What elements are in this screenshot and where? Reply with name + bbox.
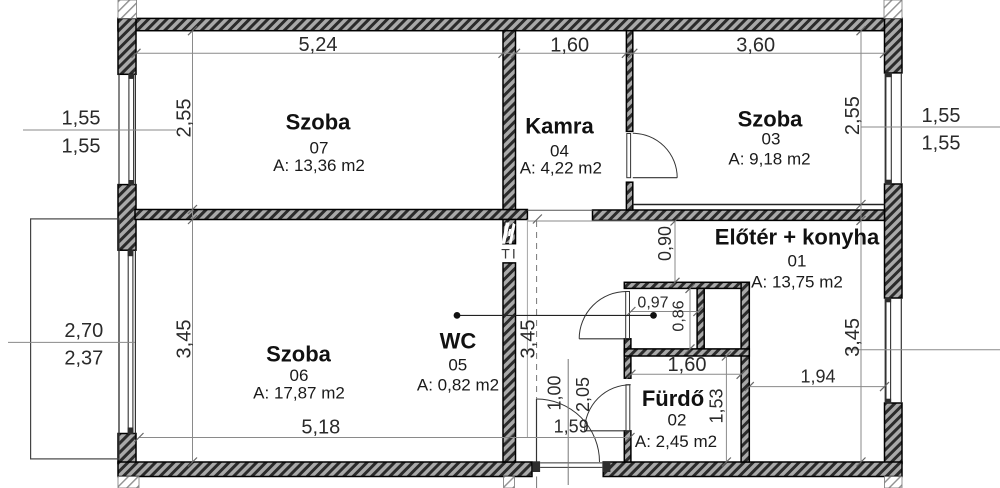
- svg-text:A: 4,22 m2: A: 4,22 m2: [520, 159, 602, 178]
- svg-text:1,60: 1,60: [550, 35, 589, 57]
- svg-text:2,55: 2,55: [174, 99, 196, 138]
- svg-text:1,59: 1,59: [554, 417, 589, 437]
- svg-text:06: 06: [290, 366, 309, 385]
- svg-text:A: 13,75 m2: A: 13,75 m2: [751, 273, 843, 292]
- svg-text:3,45: 3,45: [174, 320, 196, 359]
- svg-text:A: 17,87 m2: A: 17,87 m2: [253, 384, 345, 403]
- svg-text:5,24: 5,24: [299, 34, 338, 56]
- svg-text:1,55: 1,55: [62, 136, 101, 158]
- svg-text:A: 13,36 m2: A: 13,36 m2: [273, 156, 365, 175]
- svg-text:0,90: 0,90: [655, 226, 675, 261]
- svg-text:1,94: 1,94: [800, 367, 835, 387]
- svg-text:A: 9,18 m2: A: 9,18 m2: [728, 150, 810, 169]
- svg-text:5,18: 5,18: [301, 417, 340, 439]
- svg-text:0,97: 0,97: [637, 295, 668, 312]
- svg-text:2,70: 2,70: [64, 320, 103, 342]
- svg-text:2,05: 2,05: [573, 377, 593, 412]
- svg-text:3,60: 3,60: [736, 35, 775, 57]
- svg-text:Kamra: Kamra: [525, 114, 594, 139]
- svg-text:Szoba: Szoba: [738, 107, 804, 132]
- svg-text:1,60: 1,60: [668, 354, 707, 376]
- svg-text:2,55: 2,55: [842, 96, 864, 135]
- svg-text:Szoba: Szoba: [286, 110, 352, 135]
- svg-text:1,55: 1,55: [922, 133, 961, 155]
- svg-text:0,86: 0,86: [671, 300, 688, 331]
- svg-text:1,53: 1,53: [707, 388, 727, 423]
- svg-text:02: 02: [668, 411, 687, 430]
- svg-text:A: 0,82 m2: A: 0,82 m2: [417, 376, 499, 395]
- svg-text:05: 05: [448, 356, 467, 375]
- svg-text:Előtér + konyha: Előtér + konyha: [715, 225, 880, 250]
- svg-text:Fürdő: Fürdő: [642, 386, 704, 411]
- svg-text:01: 01: [788, 252, 807, 271]
- svg-text:1,55: 1,55: [62, 108, 101, 130]
- svg-text:TI: TI: [501, 246, 517, 262]
- svg-text:A: 2,45 m2: A: 2,45 m2: [635, 432, 717, 451]
- svg-text:03: 03: [762, 130, 781, 149]
- svg-text:1,00: 1,00: [545, 375, 565, 410]
- svg-text:Szoba: Szoba: [266, 342, 332, 367]
- svg-text:WC: WC: [440, 329, 477, 354]
- svg-text:3,45: 3,45: [842, 318, 864, 357]
- svg-text:3,45: 3,45: [518, 320, 540, 359]
- svg-text:07: 07: [310, 139, 329, 158]
- svg-text:1,55: 1,55: [922, 105, 961, 127]
- svg-text:2,37: 2,37: [64, 348, 103, 370]
